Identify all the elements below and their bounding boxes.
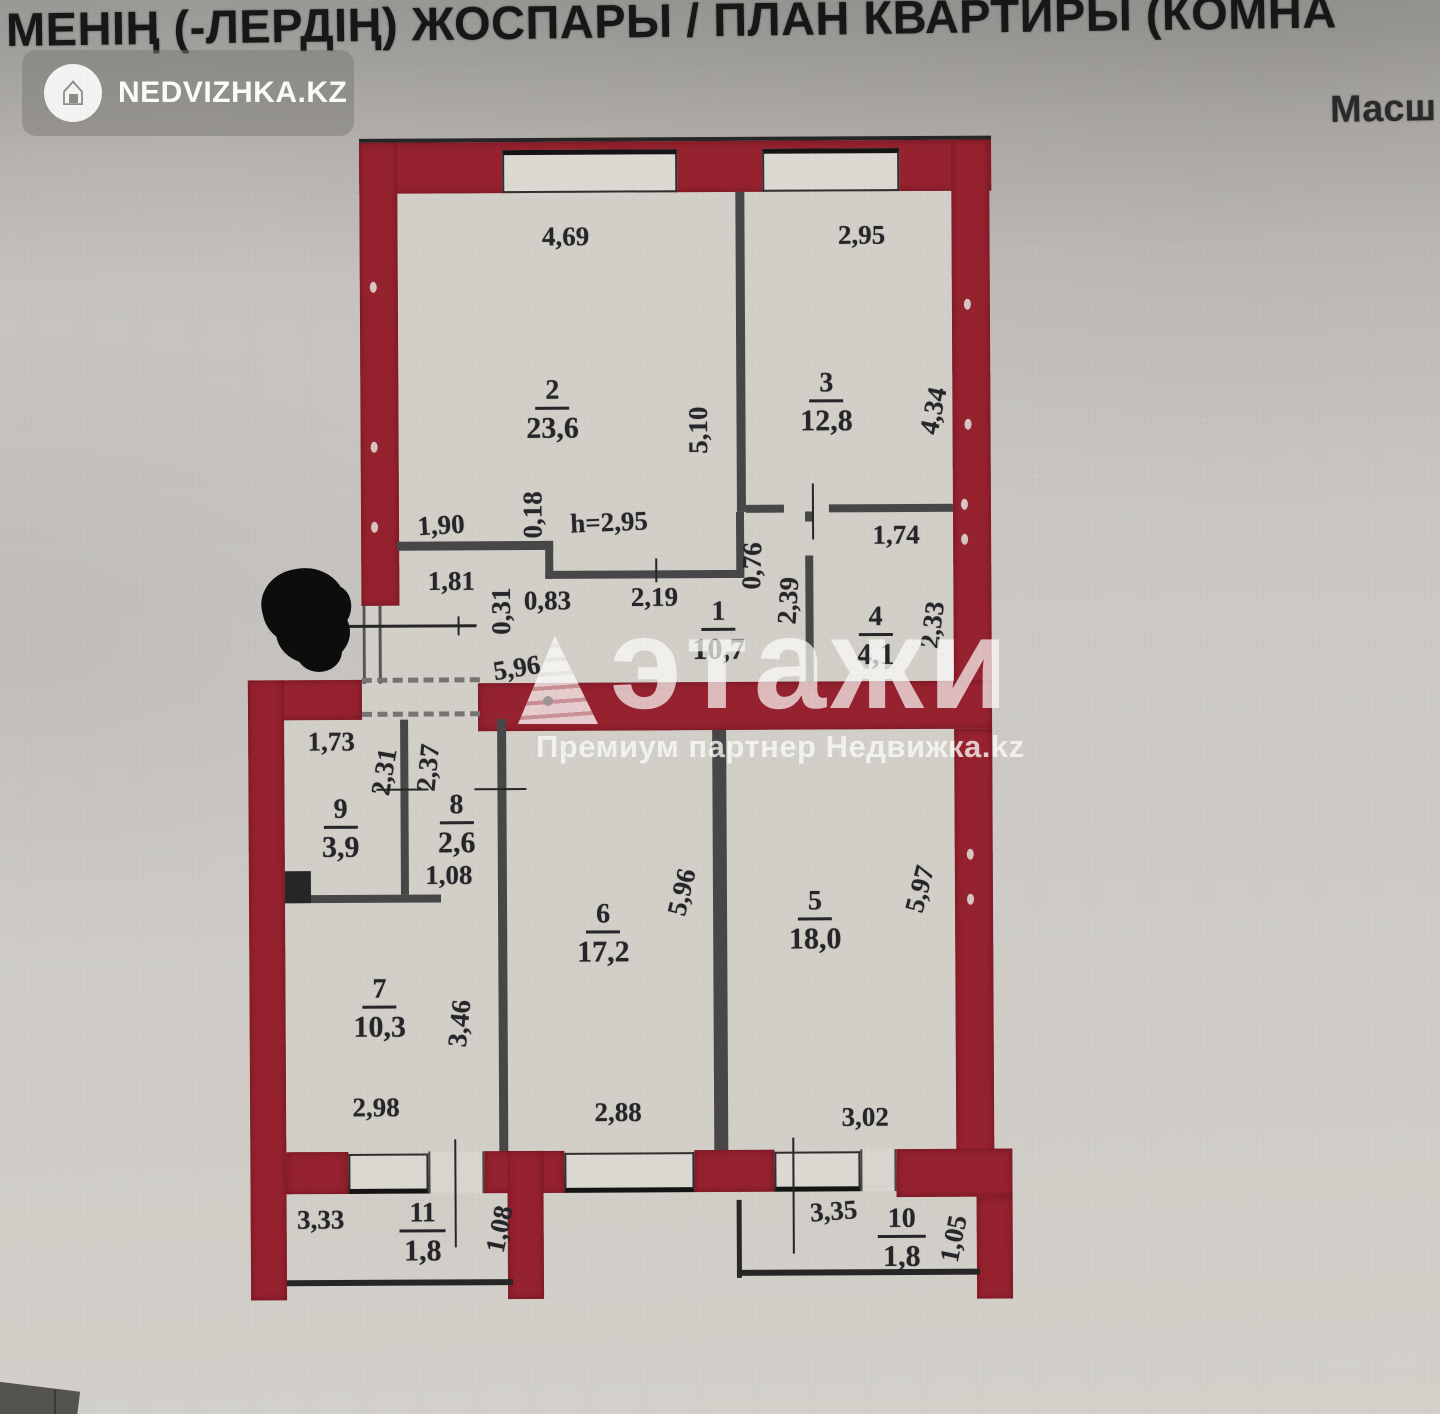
wall-segment — [829, 504, 953, 513]
room-area: 12,8 — [800, 402, 853, 439]
wall-dot — [964, 419, 971, 430]
room-number: 10 — [878, 1204, 926, 1238]
dim-0-83: 0,83 — [524, 585, 571, 616]
window — [564, 1152, 694, 1193]
window — [502, 149, 677, 193]
wall-segment — [896, 1148, 1012, 1197]
wall-segment — [286, 1152, 348, 1194]
room-number: 3 — [809, 368, 843, 402]
room-area: 2,6 — [438, 824, 476, 861]
plan-interior — [359, 140, 992, 733]
dim-0-31: 0,31 — [486, 587, 517, 634]
room-label-7: 7 10,3 — [353, 975, 406, 1046]
room-area: 18,0 — [789, 920, 842, 957]
balcony-door — [860, 1149, 896, 1191]
dimension-tick — [474, 788, 526, 790]
dim-2-39: 2,39 — [771, 576, 805, 625]
dim-room4-width: 1,74 — [872, 519, 919, 550]
dim-2-19: 2,19 — [631, 582, 678, 613]
dim-room2-height: 5,10 — [683, 406, 714, 453]
wall-notch — [285, 871, 311, 903]
room-area: 23,6 — [526, 409, 579, 446]
dimension-tick — [812, 484, 814, 540]
door-frame — [362, 606, 365, 684]
wall-segment — [977, 1196, 1014, 1298]
photo-background: МЕНІҢ (-ЛЕРДІҢ) ЖОСПАРЫ / ПЛАН КВАРТИРЫ … — [0, 0, 1440, 1414]
dim-balcony10-width: 3,35 — [809, 1194, 858, 1228]
room-label-1: 1 10,7 — [692, 597, 745, 668]
wall-segment — [359, 143, 399, 606]
dim-room4-height: 2,33 — [914, 599, 951, 650]
dimension-tick — [655, 558, 657, 582]
room-number: 9 — [323, 795, 357, 829]
floor-plan: 2 23,6 3 12,8 1 10,7 4 4,1 9 3,9 8 2,6 6… — [0, 0, 1440, 1414]
dim-room6-width: 2,88 — [594, 1097, 641, 1128]
room-area: 10,3 — [353, 1008, 406, 1045]
house-glyph: ⌂ — [60, 69, 87, 113]
dim-room8-door: 1,08 — [425, 860, 472, 891]
window — [762, 148, 899, 192]
room-label-6: 6 17,2 — [577, 899, 630, 970]
room-number: 4 — [858, 602, 892, 636]
dim-room7-width: 2,98 — [352, 1092, 399, 1123]
nedvizhka-badge: ⌂ NEDVIZHKA.KZ — [22, 50, 354, 136]
wall-segment — [400, 720, 409, 895]
dim-room8-height: 2,37 — [411, 742, 447, 792]
scale-label: Масш — [1330, 87, 1440, 132]
dim-1-81: 1,81 — [428, 566, 475, 597]
wall-segment — [805, 556, 814, 690]
room-label-4: 4 4,1 — [857, 602, 895, 672]
wall-segment — [746, 505, 784, 513]
wall-dot — [961, 534, 968, 545]
dim-room2-width: 4,69 — [542, 221, 589, 252]
dim-balcony11-width: 3,33 — [297, 1204, 344, 1235]
dimension-tick — [458, 616, 460, 635]
balcony-rail — [737, 1269, 980, 1276]
room-number: 8 — [439, 790, 473, 824]
room-number: 7 — [362, 975, 396, 1009]
room-label-5: 5 18,0 — [789, 886, 842, 957]
wall-segment — [397, 541, 553, 551]
room-area: 1,8 — [878, 1238, 926, 1275]
room-label-8: 8 2,6 — [438, 790, 476, 860]
room-number: 5 — [798, 886, 832, 920]
room-label-3: 3 12,8 — [800, 368, 853, 439]
wall-dot — [967, 894, 974, 905]
dim-room5-width: 3,02 — [841, 1102, 888, 1133]
dim-1-90: 1,90 — [417, 509, 466, 543]
wall-segment — [951, 140, 992, 689]
room-number: 1 — [701, 597, 735, 631]
door-frame — [378, 606, 381, 684]
dim-balcony10-depth: 1,05 — [934, 1213, 974, 1266]
room-area: 10,7 — [692, 631, 745, 668]
room-number: 11 — [399, 1198, 446, 1232]
room-label-10: 10 1,8 — [878, 1204, 926, 1275]
wall-segment — [248, 680, 287, 1300]
wall-dot — [961, 499, 968, 510]
wall-dot — [371, 442, 378, 453]
logo-text: NEDVIZHKA.KZ — [118, 76, 347, 110]
redaction-blob-part — [296, 630, 342, 672]
wall-segment — [954, 729, 994, 1157]
room-label-11: 11 1,8 — [399, 1198, 446, 1269]
wall-dot — [370, 282, 377, 293]
wall-segment — [478, 681, 992, 732]
wall-segment — [735, 192, 746, 512]
wall-segment — [694, 1150, 774, 1192]
dim-room9-width: 1,73 — [307, 726, 354, 757]
balcony-rail — [737, 1200, 742, 1278]
wall-dot — [967, 849, 974, 860]
dim-0-18: 0,18 — [517, 491, 548, 538]
room-area: 17,2 — [577, 933, 630, 970]
wall-dot — [964, 299, 971, 310]
photo-edge-line — [54, 1390, 56, 1414]
house-door — [69, 94, 78, 103]
dim-room3-width: 2,95 — [838, 220, 885, 251]
house-icon: ⌂ — [44, 64, 102, 122]
opening-dashed — [362, 711, 480, 717]
room-area: 4,1 — [857, 636, 895, 673]
dim-0-76: 0,76 — [736, 542, 768, 590]
dim-room7-height: 3,46 — [442, 998, 478, 1048]
room-number: 2 — [535, 376, 569, 410]
room-area: 1,8 — [400, 1232, 447, 1269]
opening-dashed — [362, 677, 480, 683]
dim-ceiling-height: h=2,95 — [570, 506, 649, 540]
room-number: 6 — [586, 899, 620, 933]
room-area: 3,9 — [322, 829, 360, 866]
wall-segment — [545, 570, 744, 579]
wall-segment — [712, 730, 728, 1152]
balcony-rail — [287, 1279, 513, 1286]
room-label-2: 2 23,6 — [526, 376, 579, 447]
window — [348, 1154, 428, 1194]
window — [774, 1151, 860, 1191]
room-label-9: 9 3,9 — [322, 795, 360, 865]
wall-dot — [371, 522, 378, 533]
